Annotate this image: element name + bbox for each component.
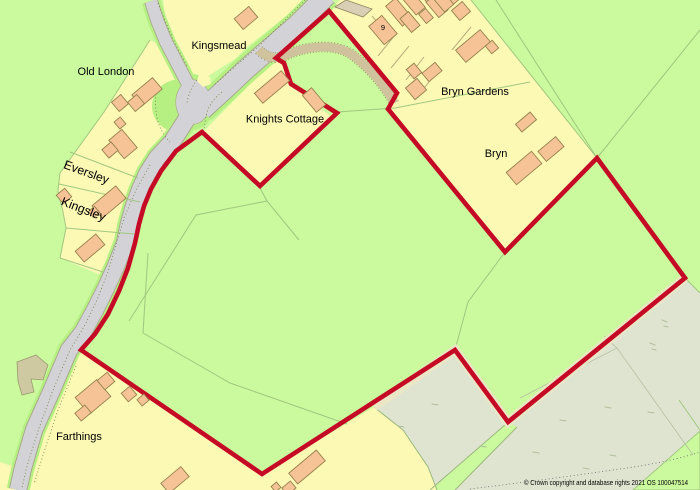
svg-text:Kingsmead: Kingsmead <box>191 40 246 52</box>
svg-text:Old London: Old London <box>78 66 135 78</box>
svg-text:9: 9 <box>381 23 385 32</box>
svg-text:Bryn: Bryn <box>485 148 508 160</box>
svg-text:© Crown copyright and database: © Crown copyright and database rights 20… <box>524 478 688 487</box>
svg-text:Bryn Gardens: Bryn Gardens <box>441 86 509 98</box>
svg-text:Knights Cottage: Knights Cottage <box>246 114 324 126</box>
svg-text:Farthings: Farthings <box>56 431 102 443</box>
